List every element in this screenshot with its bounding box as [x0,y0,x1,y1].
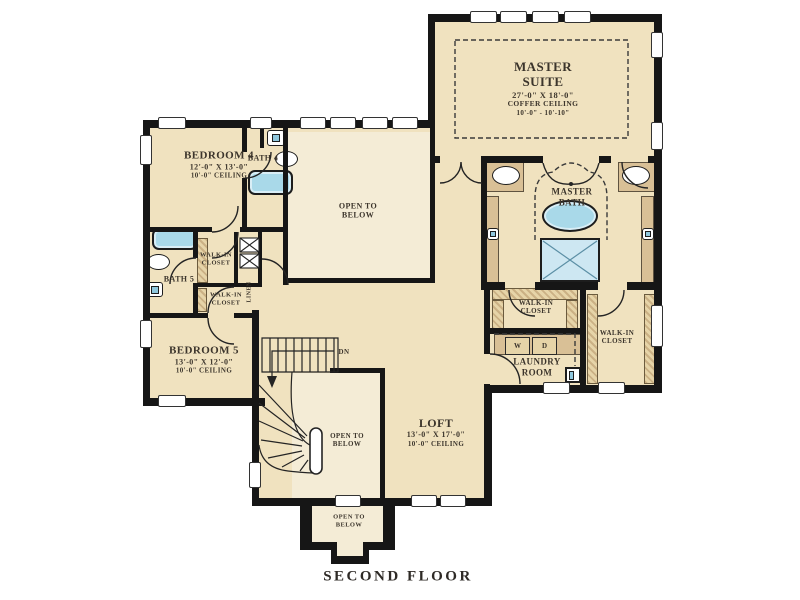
wall [242,128,247,152]
wall [488,385,662,393]
bedroom5-label: BEDROOM 5 13'-0" X 12'-0" 10'-0" CEILING [139,345,269,376]
wic-lower-left-name: WALK-IN CLOSET [205,291,247,306]
dryer-box: D [532,337,557,355]
master-suite-name: MASTER SUITE [498,59,588,90]
bedroom5-dims: 13'-0" X 12'-0" [139,358,269,367]
window [411,495,437,507]
wall [535,282,598,290]
wall [627,282,662,290]
floor-plan-title: SECOND FLOOR [323,569,473,586]
window [651,305,663,347]
water-closet-wall-right [641,196,654,286]
window [598,382,625,394]
window [543,382,570,394]
window [250,117,272,129]
sink-icon [622,166,650,185]
wall [484,384,490,392]
loft-name: LOFT [381,416,491,430]
window [440,495,466,507]
washer-label: W [514,342,521,350]
bath4-label: BATH 4 [247,153,279,162]
window [362,117,388,129]
window [158,117,186,129]
wall [234,313,259,318]
toilet-icon [642,228,654,240]
wall [260,128,264,148]
master-suite-ceiling: COFFER CEILING [498,100,588,109]
wall [258,232,262,287]
loft-label: LOFT 13'-0" X 17'-0" 10'-0" CEILING [381,416,491,448]
window [564,11,591,23]
wall [428,22,435,128]
wall [330,368,385,373]
walk-in-closet-label: WALK-IN CLOSET [513,299,559,316]
otb-entry-text: OPEN TO BELOW [329,513,369,528]
master-suite-ceiling-range: 10'-0" - 10'-10" [498,109,588,117]
window [158,395,186,407]
wall [648,156,662,163]
floor-plan: W D [0,0,800,600]
wall [481,163,487,290]
window [651,32,663,58]
window [651,122,663,150]
wall [242,178,247,232]
window [470,11,497,23]
wall [488,282,505,290]
bedroom5-ceiling: 10'-0" CEILING [139,367,269,375]
dryer-label: D [542,342,547,350]
walk-in-closet-label: WALK-IN CLOSET [594,329,640,346]
wall [193,284,198,313]
loft-ceiling: 10'-0" CEILING [381,440,491,448]
window [392,117,418,129]
shower-icon [540,238,600,282]
open-to-below-label: OPEN TO BELOW [325,432,369,449]
laundry-label: LAUNDRY ROOM [507,356,567,377]
open-to-below-label: OPEN TO BELOW [329,513,369,528]
wall [150,227,212,232]
linen-label: LINEN [246,281,253,302]
bath5-label: BATH 5 [163,274,195,283]
window [500,11,527,23]
water-closet-wall-left [486,196,499,286]
bedroom4-ceiling: 10'-0" CEILING [154,172,284,180]
walk-in-closet-label: WALK-IN CLOSET [205,291,247,306]
wic-master-left-name: WALK-IN CLOSET [513,299,559,316]
window [532,11,559,23]
wall [481,156,543,163]
sink-icon [147,254,170,270]
linen-name: LINEN [246,281,252,302]
sink-icon [492,166,520,185]
walk-in-closet-label: WALK-IN CLOSET [195,251,237,266]
wall [283,278,435,283]
washer-box: W [505,337,530,355]
closet-shelf [566,300,578,330]
otb-center-text: OPEN TO BELOW [334,202,382,221]
toilet-icon [487,228,499,240]
otb-stair-text: OPEN TO BELOW [325,432,369,449]
entry-bay-stub-floor [337,542,363,556]
laundry-name: LAUNDRY ROOM [507,356,567,377]
wall [240,227,288,232]
wall [484,390,492,506]
wic-upper-left-name: WALK-IN CLOSET [195,251,237,266]
wall [430,128,435,283]
wall [490,328,585,334]
bath5-name: BATH 5 [163,274,195,283]
window [140,135,152,165]
wall [432,156,440,163]
window [330,117,356,129]
bedroom4-dims: 12'-0" X 13'-0" [154,163,284,172]
wall [580,282,586,393]
window [249,462,261,488]
loft-dims: 13'-0" X 17'-0" [381,430,491,439]
attic-access-icon [565,367,581,383]
master-bath-label: MASTER BATH [545,186,599,207]
dn-text: DN [339,348,350,356]
floor-title-text: SECOND FLOOR [323,569,473,585]
open-to-below-label: OPEN TO BELOW [334,202,382,221]
wic-master-right-name: WALK-IN CLOSET [594,329,640,346]
wall [150,313,208,318]
loft-floor [380,278,490,506]
window [300,117,326,129]
stair-down-label: DN [339,348,350,356]
wall [484,282,490,354]
master-suite-label: MASTER SUITE 27'-0" X 18'-0" COFFER CEIL… [498,59,588,117]
wall [599,156,611,163]
window [335,495,361,507]
closet-shelf [492,300,504,330]
master-bath-name: MASTER BATH [545,186,599,207]
bedroom5-name: BEDROOM 5 [139,345,269,358]
bath4-name: BATH 4 [247,153,279,162]
